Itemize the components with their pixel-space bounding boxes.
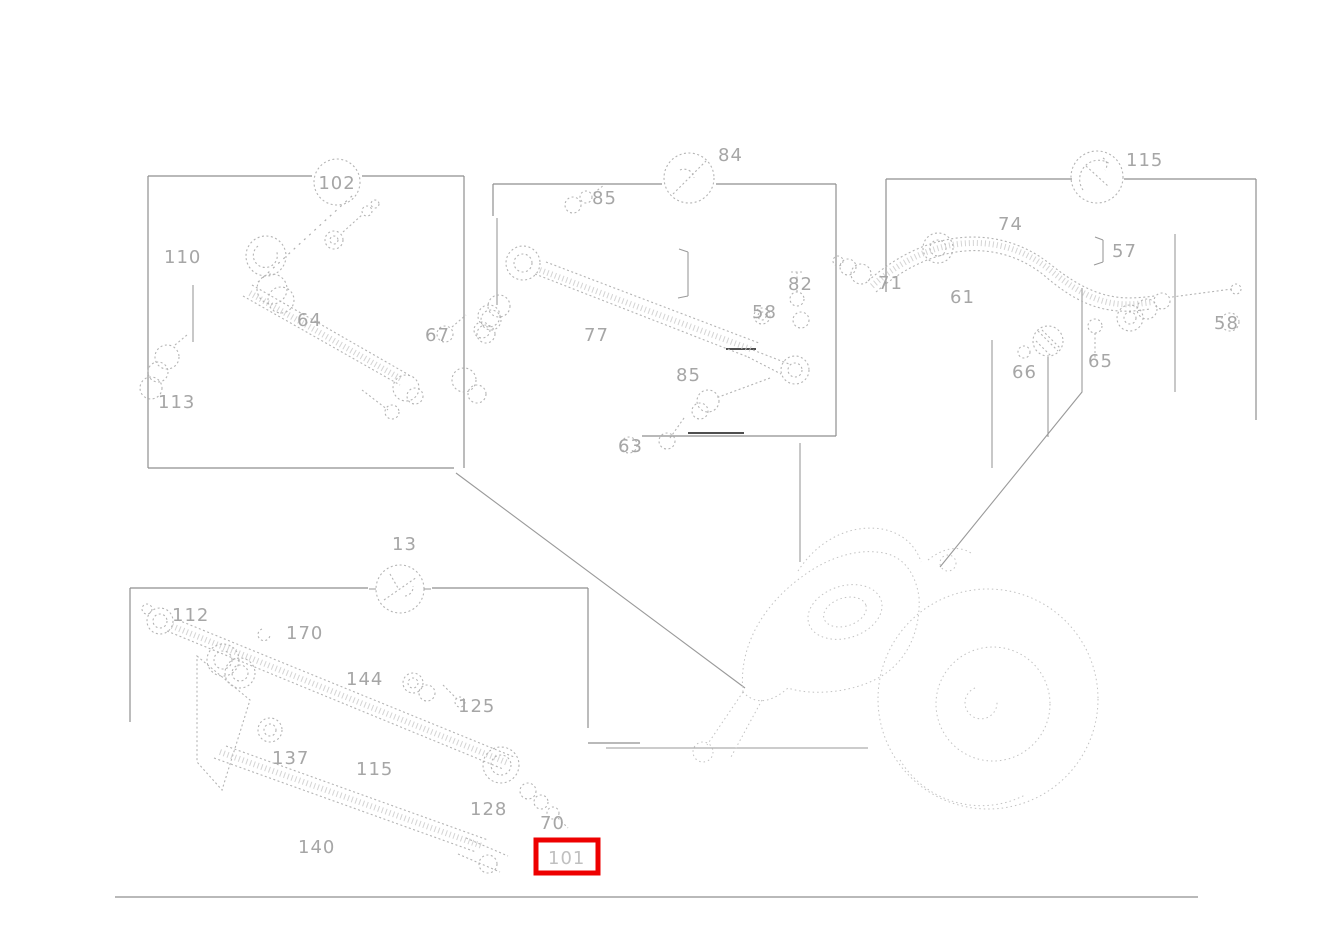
- parts-diagram-page: 1021106467113848577825885631157457716158…: [0, 0, 1326, 937]
- parts-diagram-canvas: 1021106467113848577825885631157457716158…: [0, 0, 1326, 937]
- circle-ref-star-icon[interactable]: [369, 565, 431, 613]
- leader-lines: [193, 196, 1175, 748]
- circle-ref-bolt-icon[interactable]: [664, 153, 714, 203]
- circle-ref-wrench-icon[interactable]: [1071, 151, 1123, 203]
- part-label-85[interactable]: 85: [676, 365, 701, 386]
- part-label-85[interactable]: 85: [592, 188, 617, 209]
- part-label-70[interactable]: 70: [540, 813, 565, 834]
- part-label-65[interactable]: 65: [1088, 351, 1113, 372]
- part-label-67[interactable]: 67: [425, 325, 450, 346]
- part-label-170[interactable]: 170: [286, 623, 323, 644]
- part-label-71[interactable]: 71: [878, 273, 903, 294]
- part-label-115[interactable]: 115: [1126, 150, 1163, 171]
- part-label-82[interactable]: 82: [788, 274, 813, 295]
- part-label-113[interactable]: 113: [158, 392, 195, 413]
- part-label-77[interactable]: 77: [584, 325, 609, 346]
- part-label-57[interactable]: 57: [1112, 241, 1137, 262]
- part-label-13[interactable]: 13: [392, 534, 417, 555]
- part-label-66[interactable]: 66: [1012, 362, 1037, 383]
- part-label-101[interactable]: 101: [548, 848, 585, 869]
- part-label-115[interactable]: 115: [356, 759, 393, 780]
- part-label-102[interactable]: 102: [318, 173, 355, 194]
- panel-bottom-left: [142, 604, 568, 873]
- part-label-140[interactable]: 140: [298, 837, 335, 858]
- part-label-58[interactable]: 58: [1214, 313, 1239, 334]
- part-label-63[interactable]: 63: [618, 436, 643, 457]
- part-label-84[interactable]: 84: [718, 145, 743, 166]
- part-label-110[interactable]: 110: [164, 247, 201, 268]
- part-label-58[interactable]: 58: [752, 302, 777, 323]
- part-label-125[interactable]: 125: [458, 696, 495, 717]
- panel-borders: [115, 176, 1256, 897]
- panel-top-right: [833, 233, 1241, 360]
- axle-illustration: [693, 528, 1098, 809]
- part-label-144[interactable]: 144: [346, 669, 383, 690]
- part-label-74[interactable]: 74: [998, 214, 1023, 235]
- part-label-112[interactable]: 112: [172, 605, 209, 626]
- part-label-61[interactable]: 61: [950, 287, 975, 308]
- part-label-137[interactable]: 137: [272, 748, 309, 769]
- part-label-64[interactable]: 64: [297, 310, 322, 331]
- part-label-128[interactable]: 128: [470, 799, 507, 820]
- part-number-labels: 1021106467113848577825885631157457716158…: [158, 145, 1239, 869]
